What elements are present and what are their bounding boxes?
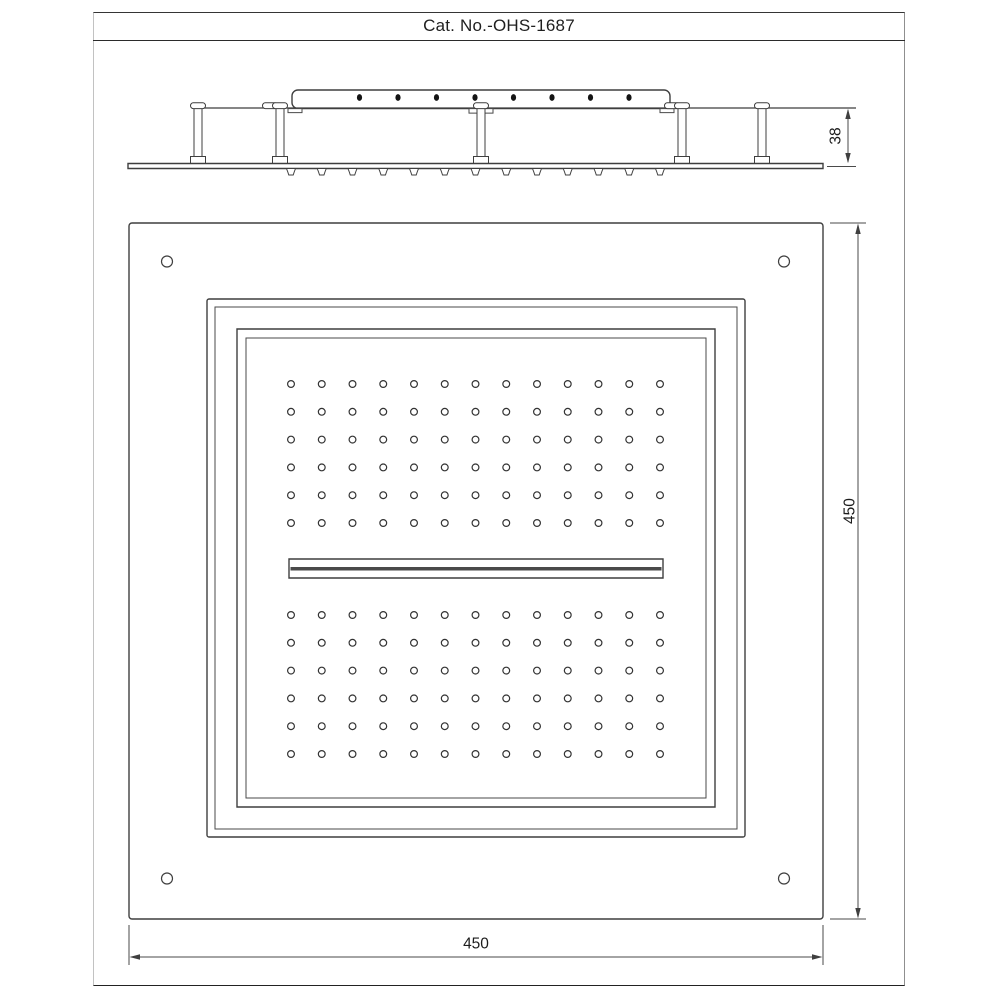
spray-hole — [318, 612, 325, 619]
mounting-post-cap — [755, 103, 770, 109]
spray-hole — [380, 492, 387, 499]
spray-hole — [411, 436, 418, 443]
spray-hole — [411, 695, 418, 702]
spray-hole — [349, 667, 356, 674]
spray-hole — [564, 408, 571, 415]
spray-hole — [534, 612, 541, 619]
bracket-slot-hole — [626, 94, 631, 101]
nozzle-profile — [563, 169, 572, 176]
corner-screw-hole — [162, 873, 173, 884]
spray-hole — [657, 751, 664, 758]
spray-hole — [564, 436, 571, 443]
bracket-tab — [288, 109, 302, 113]
spray-hole — [534, 723, 541, 730]
nozzle-profile — [348, 169, 357, 176]
spray-hole — [380, 723, 387, 730]
spray-hole — [441, 612, 448, 619]
spray-hole — [534, 492, 541, 499]
plan-width-dim-label: 450 — [463, 936, 489, 953]
spray-hole — [318, 667, 325, 674]
spray-hole — [595, 667, 602, 674]
spray-hole — [288, 408, 295, 415]
spray-hole — [534, 436, 541, 443]
spray-hole — [288, 639, 295, 646]
spray-hole — [411, 381, 418, 388]
spray-hole — [318, 436, 325, 443]
plan-height-dimension: 450 — [830, 223, 866, 919]
spray-hole — [349, 520, 356, 527]
spray-hole — [318, 381, 325, 388]
spray-hole — [318, 751, 325, 758]
mounting-post-cap — [273, 103, 288, 109]
spray-hole — [380, 381, 387, 388]
spray-hole — [288, 381, 295, 388]
spray-hole — [441, 381, 448, 388]
spray-hole — [441, 667, 448, 674]
nozzle-profile — [471, 169, 480, 176]
spray-hole — [441, 464, 448, 471]
spray-hole — [380, 408, 387, 415]
waterfall-slot — [289, 559, 663, 578]
spray-hole — [411, 520, 418, 527]
bracket-slot-hole — [357, 94, 362, 101]
spray-hole — [564, 667, 571, 674]
plan-width-dimension: 450 — [129, 925, 823, 965]
spray-hole — [564, 520, 571, 527]
spray-hole — [349, 492, 356, 499]
spray-hole — [318, 723, 325, 730]
spray-hole — [595, 492, 602, 499]
spray-hole — [349, 612, 356, 619]
spray-hole — [626, 667, 633, 674]
spray-hole — [380, 436, 387, 443]
spray-hole — [288, 667, 295, 674]
mounting-post-cap — [675, 103, 690, 109]
nozzle-profile — [440, 169, 449, 176]
spray-hole — [318, 695, 325, 702]
spray-hole — [349, 381, 356, 388]
spray-hole — [380, 520, 387, 527]
mounting-post-cap — [191, 103, 206, 109]
spray-hole — [564, 639, 571, 646]
mounting-post-cap — [474, 103, 489, 109]
spray-hole — [472, 695, 479, 702]
spray-hole — [441, 408, 448, 415]
spray-hole — [472, 612, 479, 619]
mounting-post-foot — [273, 157, 288, 164]
spray-hole — [626, 492, 633, 499]
spray-hole — [288, 695, 295, 702]
spray-hole — [411, 492, 418, 499]
spray-hole — [595, 639, 602, 646]
arrowhead-up — [855, 224, 860, 235]
spray-hole — [534, 667, 541, 674]
shower-face-plate-edge — [128, 164, 823, 169]
spray-hole — [318, 464, 325, 471]
spray-hole — [349, 464, 356, 471]
mounting-post-body — [194, 109, 202, 157]
spray-hole — [626, 464, 633, 471]
spray-hole — [503, 723, 510, 730]
spray-hole — [534, 639, 541, 646]
spray-hole — [318, 639, 325, 646]
spray-hole — [595, 436, 602, 443]
spray-hole — [411, 667, 418, 674]
nozzle-profile — [502, 169, 511, 176]
spray-hole — [441, 639, 448, 646]
spray-hole — [380, 612, 387, 619]
spray-hole — [657, 639, 664, 646]
spray-hole — [503, 695, 510, 702]
corner-screw-hole — [779, 256, 790, 267]
spray-hole — [503, 408, 510, 415]
corner-screw-hole — [162, 256, 173, 267]
arrowhead-left — [130, 954, 141, 959]
nozzle-profile — [379, 169, 388, 176]
bracket-slot-hole — [395, 94, 400, 101]
spray-hole — [564, 464, 571, 471]
spray-hole — [411, 639, 418, 646]
spray-hole — [595, 408, 602, 415]
spray-hole — [564, 381, 571, 388]
spray-hole — [564, 751, 571, 758]
mounting-post-foot — [675, 157, 690, 164]
spray-hole — [411, 723, 418, 730]
nozzle-profile — [533, 169, 542, 176]
spray-hole — [349, 436, 356, 443]
spray-hole — [534, 751, 541, 758]
spray-hole — [595, 520, 602, 527]
spray-hole — [288, 723, 295, 730]
spray-hole — [626, 723, 633, 730]
corner-screw-hole — [779, 873, 790, 884]
mounting-post-foot — [755, 157, 770, 164]
spray-hole — [564, 492, 571, 499]
bracket-slot-hole — [511, 94, 516, 101]
bracket-slot-hole — [472, 94, 477, 101]
spray-hole — [626, 436, 633, 443]
spray-hole — [472, 667, 479, 674]
spray-hole — [657, 492, 664, 499]
spray-hole — [472, 520, 479, 527]
spray-hole — [441, 520, 448, 527]
arrowhead-down — [845, 153, 850, 163]
mounting-post-foot — [191, 157, 206, 164]
spray-hole — [503, 520, 510, 527]
nozzle-profile — [287, 169, 296, 176]
spray-hole — [503, 612, 510, 619]
arrowhead-up — [845, 109, 850, 119]
nozzle-profile — [317, 169, 326, 176]
spray-hole — [626, 639, 633, 646]
mounting-post-body — [758, 109, 766, 157]
spray-hole — [657, 723, 664, 730]
spray-hole — [288, 520, 295, 527]
bracket-tab — [660, 109, 674, 113]
bracket-slot-hole — [588, 94, 593, 101]
spray-hole — [657, 408, 664, 415]
spray-hole — [349, 723, 356, 730]
side-height-dimension: 38 — [827, 109, 856, 167]
spray-hole — [472, 723, 479, 730]
spray-hole — [657, 436, 664, 443]
waterfall-slot-opening — [291, 567, 662, 571]
spray-hole — [595, 612, 602, 619]
nozzle-profile — [625, 169, 634, 176]
spray-hole — [318, 520, 325, 527]
spray-hole — [503, 464, 510, 471]
drawing-canvas: Cat. No.-OHS-1687 — [0, 0, 1000, 1000]
spray-hole — [380, 751, 387, 758]
spray-hole — [349, 695, 356, 702]
bracket-slot-hole — [549, 94, 554, 101]
mounting-post-foot — [474, 157, 489, 164]
spray-hole — [503, 381, 510, 388]
spray-hole — [288, 464, 295, 471]
spray-hole — [534, 464, 541, 471]
spray-hole — [472, 408, 479, 415]
spray-hole — [564, 612, 571, 619]
spray-hole — [349, 639, 356, 646]
spray-hole — [411, 612, 418, 619]
spray-hole — [626, 695, 633, 702]
spray-hole — [657, 520, 664, 527]
spray-hole — [472, 751, 479, 758]
spray-hole — [595, 695, 602, 702]
spray-hole — [349, 408, 356, 415]
spray-hole — [503, 667, 510, 674]
spray-hole — [626, 408, 633, 415]
spray-hole — [288, 492, 295, 499]
spray-hole — [626, 520, 633, 527]
spray-hole — [657, 464, 664, 471]
nozzle-profile — [594, 169, 603, 176]
spray-hole — [288, 751, 295, 758]
spray-hole — [472, 436, 479, 443]
nozzle-profile — [656, 169, 665, 176]
spray-hole — [503, 436, 510, 443]
spray-hole — [288, 612, 295, 619]
bracket-slot-hole — [434, 94, 439, 101]
spray-hole — [595, 381, 602, 388]
spray-hole — [595, 464, 602, 471]
spray-hole — [534, 381, 541, 388]
spray-hole — [441, 695, 448, 702]
side-height-dim-label: 38 — [828, 127, 845, 144]
spray-hole — [441, 751, 448, 758]
side-view: 38 — [128, 90, 856, 175]
spray-hole — [349, 751, 356, 758]
support-posts — [191, 103, 770, 164]
mounting-post-body — [276, 109, 284, 157]
arrowhead-down — [855, 908, 860, 919]
spray-hole — [595, 723, 602, 730]
spray-hole — [441, 492, 448, 499]
spray-hole — [318, 492, 325, 499]
plan-view: 450 450 — [129, 223, 866, 965]
spray-hole — [657, 695, 664, 702]
nozzle-profile — [410, 169, 419, 176]
spray-hole — [411, 408, 418, 415]
spray-hole — [503, 751, 510, 758]
mounting-post-body — [477, 109, 485, 157]
spray-hole — [503, 639, 510, 646]
side-nozzle-row — [287, 169, 665, 176]
spray-hole — [564, 723, 571, 730]
spray-hole — [564, 695, 571, 702]
spray-hole — [441, 436, 448, 443]
plan-height-dim-label: 450 — [842, 498, 859, 524]
mounting-post-body — [678, 109, 686, 157]
spray-hole — [595, 751, 602, 758]
spray-hole — [380, 667, 387, 674]
spray-hole — [657, 612, 664, 619]
spray-hole — [626, 381, 633, 388]
spray-hole — [472, 381, 479, 388]
technical-drawing: 38 — [0, 0, 1000, 1000]
spray-hole — [318, 408, 325, 415]
spray-hole — [411, 751, 418, 758]
spray-hole — [288, 436, 295, 443]
spray-hole — [411, 464, 418, 471]
spray-hole — [380, 464, 387, 471]
spray-hole — [503, 492, 510, 499]
spray-hole — [441, 723, 448, 730]
arrowhead-right — [812, 954, 823, 959]
spray-hole — [534, 408, 541, 415]
spray-hole — [657, 381, 664, 388]
spray-hole — [626, 751, 633, 758]
spray-hole — [657, 667, 664, 674]
spray-hole — [472, 639, 479, 646]
spray-hole — [380, 695, 387, 702]
spray-hole — [472, 464, 479, 471]
spray-hole — [534, 695, 541, 702]
spray-hole — [626, 612, 633, 619]
spray-hole — [380, 639, 387, 646]
spray-hole — [534, 520, 541, 527]
spray-hole — [472, 492, 479, 499]
